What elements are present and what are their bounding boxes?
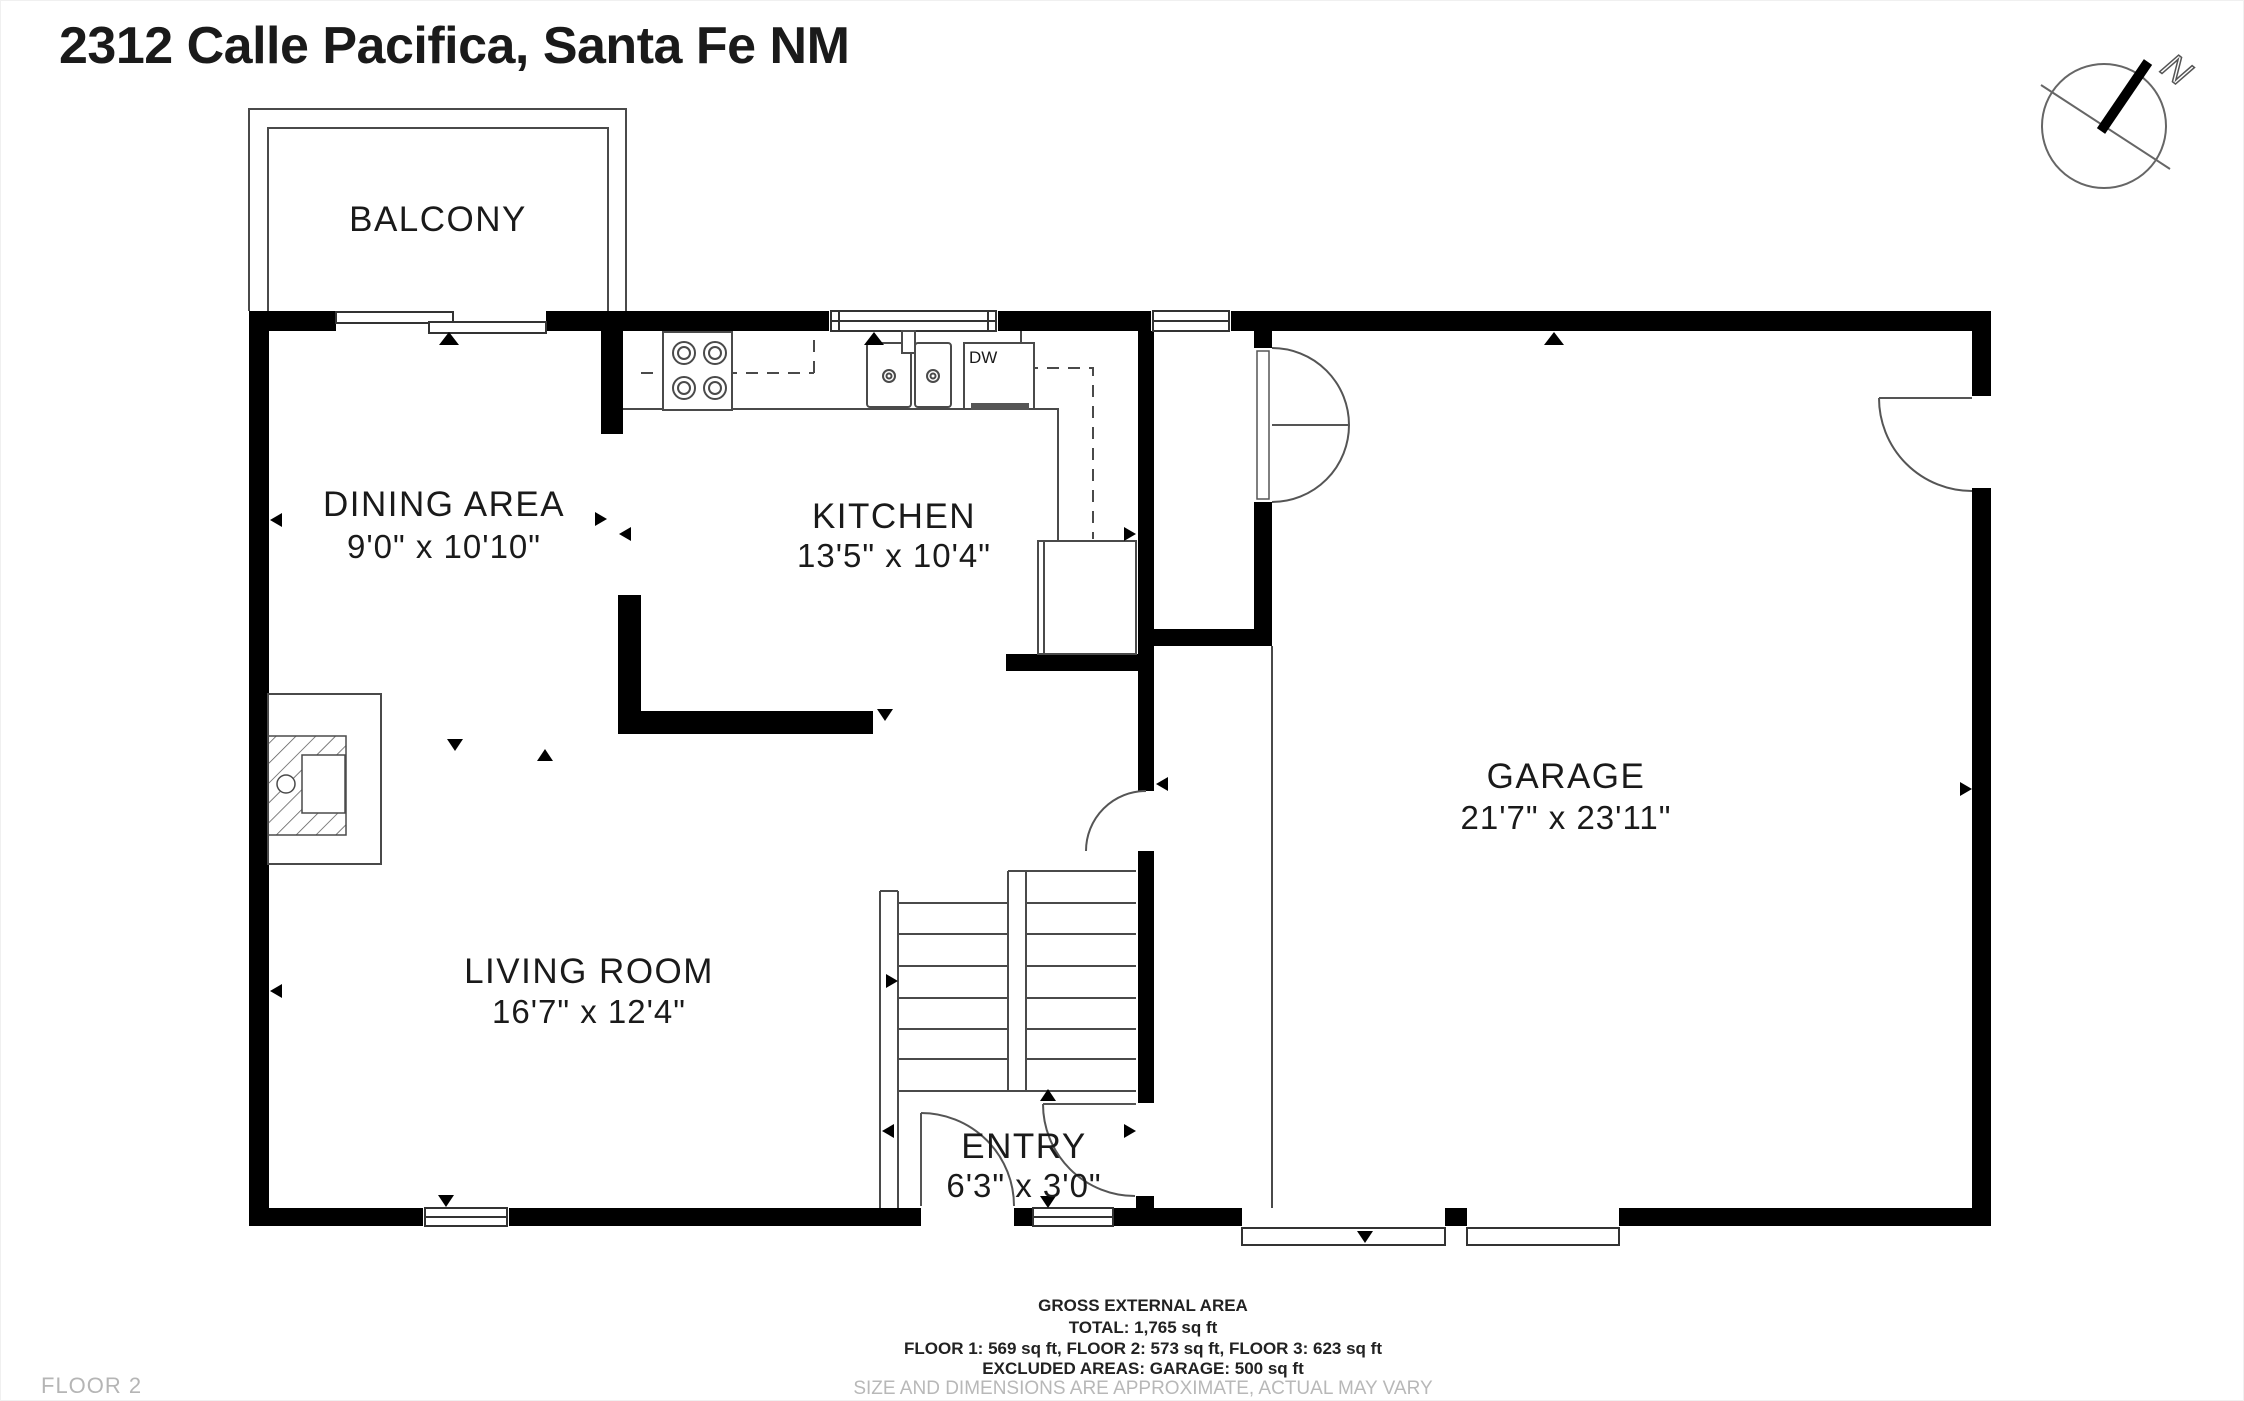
footer-total: TOTAL: 1,765 sq ft <box>1069 1318 1218 1337</box>
living-window-icon <box>425 1208 507 1226</box>
room-label-balcony: BALCONY <box>349 200 527 239</box>
garage-side-door-icon <box>1879 398 1972 491</box>
room-label-garage: GARAGE <box>1487 757 1646 796</box>
compass-north-label: N <box>2154 45 2201 94</box>
floor-plan-canvas: 2312 Calle Pacifica, Santa Fe NM N <box>1 1 2244 1401</box>
room-dims-garage: 21'7" x 23'11" <box>1461 799 1672 836</box>
room-label-dining: DINING AREA <box>323 485 565 524</box>
room-label-kitchen: KITCHEN <box>812 497 976 536</box>
doors <box>921 348 1972 1206</box>
room-dims-entry: 6'3" x 3'0" <box>946 1167 1101 1204</box>
sliding-door-icon <box>336 312 546 333</box>
footer-excluded: EXCLUDED AREAS: GARAGE: 500 sq ft <box>982 1359 1304 1378</box>
french-doors-icon <box>1254 348 1349 502</box>
floorplan-page: 2312 Calle Pacifica, Santa Fe NM N <box>0 0 2244 1401</box>
footer-gross-area: GROSS EXTERNAL AREA <box>1038 1296 1248 1315</box>
floor-label: FLOOR 2 <box>41 1373 142 1398</box>
direction-markers <box>270 332 1972 1243</box>
area-summary: GROSS EXTERNAL AREA TOTAL: 1,765 sq ft F… <box>853 1296 1433 1399</box>
entry-sidelight-icon <box>1033 1208 1113 1226</box>
garage-door-icon <box>1242 1228 1619 1245</box>
hall-door-icon <box>1086 791 1154 851</box>
fireplace-icon <box>268 694 381 864</box>
stove-icon <box>663 332 732 410</box>
walls <box>249 311 1991 1226</box>
dishwasher-icon: DW <box>964 343 1034 410</box>
footer-floors: FLOOR 1: 569 sq ft, FLOOR 2: 573 sq ft, … <box>904 1339 1382 1358</box>
room-label-living: LIVING ROOM <box>464 952 714 991</box>
room-dims-living: 16'7" x 12'4" <box>492 993 686 1030</box>
windows <box>336 311 1619 1245</box>
kitchen-window-icon <box>831 311 996 331</box>
dishwasher-label: DW <box>969 348 997 367</box>
compass-icon: N <box>2041 45 2200 188</box>
page-title: 2312 Calle Pacifica, Santa Fe NM <box>59 17 849 75</box>
closet-window-icon <box>1153 311 1229 331</box>
room-dims-kitchen: 13'5" x 10'4" <box>797 537 991 574</box>
room-dims-dining: 9'0" x 10'10" <box>347 528 541 565</box>
footer-disclaimer: SIZE AND DIMENSIONS ARE APPROXIMATE, ACT… <box>853 1378 1433 1399</box>
room-label-entry: ENTRY <box>961 1127 1087 1166</box>
